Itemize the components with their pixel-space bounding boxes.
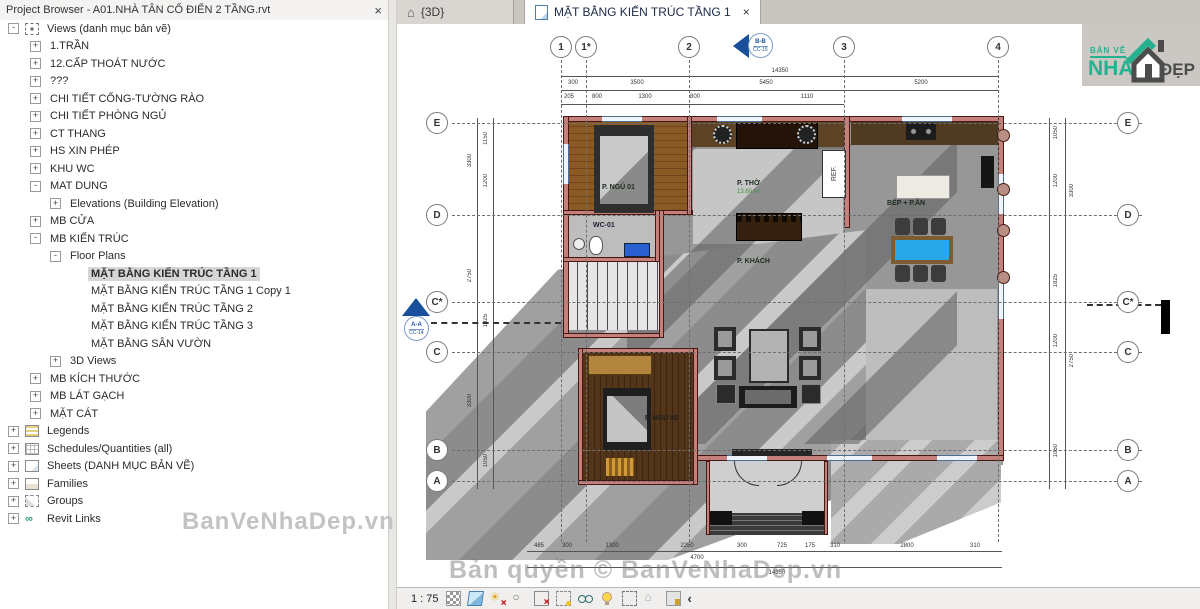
drawing-canvas[interactable]: BẢN VẼ NHÀ ĐẸP [397, 24, 1200, 587]
tree-item[interactable]: 1.TRẦN [0, 38, 388, 56]
house-logo-icon [1124, 32, 1172, 84]
expand-icon[interactable] [30, 373, 41, 384]
room-label-kitchen: BẾP + P.ĂN [887, 200, 925, 207]
expand-icon[interactable] [8, 478, 19, 489]
revit-links-icon: ∞ [25, 513, 39, 525]
grid-bubble-E-left: E [426, 112, 448, 134]
tree-item[interactable]: MẶT BẰNG KIẾN TRÚC TẦNG 3 [0, 318, 388, 336]
armchair-cushion [803, 331, 817, 347]
tree-item[interactable]: MẶT CÁT [0, 405, 388, 423]
dim-value: 5450 [759, 80, 772, 86]
expand-icon[interactable] [8, 513, 19, 524]
kitchen-island [896, 175, 950, 199]
bed-2-blanket [607, 396, 647, 442]
grid-bubble-B-right: B [1117, 439, 1139, 461]
window [937, 455, 977, 461]
tree-item[interactable]: MB KIẾN TRÚC [0, 230, 388, 248]
sheets-icon [25, 460, 39, 472]
wall [655, 210, 660, 262]
grid-bubble-B-left: B [426, 439, 448, 461]
armchair-cushion [718, 360, 732, 376]
dim-value: 1050 [483, 454, 489, 467]
dim-value: 800 [690, 94, 700, 100]
collapse-icon[interactable] [30, 233, 41, 244]
grid-bubble-1s: 1* [575, 36, 597, 58]
grid-line-D [452, 215, 1142, 216]
dim-value: 300 [737, 543, 747, 549]
legends-icon [25, 425, 39, 437]
show-crop-region-icon[interactable] [556, 591, 571, 606]
dim-value: 3300 [1069, 184, 1075, 197]
section-marker-aa: A-A CC-14 [404, 316, 429, 341]
staircase [568, 262, 660, 330]
grid-line-3 [844, 60, 845, 542]
side-table [801, 384, 821, 404]
armchair-cushion [718, 331, 732, 347]
schedules-icon [25, 443, 39, 455]
section-tail-mark [1161, 300, 1170, 334]
room-label-bedroom1: P. NGỦ 01 [602, 184, 635, 191]
room-label-bedroom2: P. NGỦ 02 [645, 415, 678, 422]
tree-item-views[interactable]: Views (danh mục bản vẽ) [0, 20, 388, 38]
dining-chair [931, 218, 946, 235]
dim-value: 205 [564, 94, 574, 100]
grid-bubble-C-left: C [426, 341, 448, 363]
crop-view-icon[interactable] [534, 591, 549, 606]
dim-value: 1825 [483, 314, 489, 327]
copyright-watermark: Bản quyền © BanVeNhaDep.vn [449, 556, 842, 585]
dining-chair [931, 265, 946, 282]
sink [573, 238, 585, 250]
visual-style-icon[interactable] [466, 591, 483, 606]
dim-value: 1200 [483, 174, 489, 187]
expand-icon[interactable] [30, 216, 41, 227]
tall-cabinet [981, 156, 994, 188]
dim-value: 725 [777, 543, 787, 549]
banvenhadep-logo: BẢN VẼ NHÀ ĐẸP [1082, 24, 1200, 86]
grid-bubble-D-left: D [426, 204, 448, 226]
tree-item[interactable]: MẶT BẰNG KIẾN TRÚC TẦNG 2 [0, 300, 388, 318]
collapse-icon[interactable] [8, 23, 19, 34]
room-label-altar: P. THỜ [737, 180, 760, 187]
dimension-line [477, 118, 478, 489]
wall [563, 333, 663, 338]
grid-bubble-A-left: A [426, 470, 448, 492]
dim-value: 2250 [680, 543, 693, 549]
window [717, 116, 762, 122]
dining-chair [913, 265, 928, 282]
project-browser-panel: Project Browser - A01.NHÀ TÂN CỔ ĐIỂN 2 … [0, 0, 389, 609]
groups-icon [25, 495, 39, 507]
dim-value: 14350 [772, 68, 789, 74]
tree-item[interactable]: KHU WC [0, 160, 388, 178]
bath-bench [624, 243, 650, 257]
collapse-icon[interactable] [30, 181, 41, 192]
tab-close-icon[interactable]: × [743, 5, 750, 19]
grid-line-2 [689, 60, 690, 542]
tree-item[interactable]: CHI TIẾT PHÒNG NGỦ [0, 108, 388, 126]
tree-item[interactable]: Elevations (Building Elevation) [0, 195, 388, 213]
section-line [431, 322, 561, 324]
dim-value: 1150 [483, 132, 489, 145]
wall [578, 348, 583, 485]
tree-item[interactable]: MAT DUNG [0, 178, 388, 196]
expand-icon[interactable] [30, 76, 41, 87]
dim-value: 310 [970, 543, 980, 549]
tab-floor-plan-active[interactable]: MẶT BẰNG KIẾN TRÚC TẦNG 1 × [524, 0, 761, 24]
expand-icon[interactable] [30, 41, 41, 52]
tab-label: {3D} [421, 5, 444, 19]
dim-value: 1825 [1053, 274, 1059, 287]
dim-value: 2750 [1069, 354, 1075, 367]
sun-path-icon[interactable] [490, 591, 505, 606]
expand-icon[interactable] [30, 58, 41, 69]
grid-bubble-1: 1 [550, 36, 572, 58]
expand-icon[interactable] [30, 391, 41, 402]
temporary-view-properties-icon[interactable] [622, 591, 637, 606]
refrigerator-label: REF. [831, 166, 838, 181]
side-table [716, 384, 736, 404]
wall [563, 257, 663, 262]
home-icon: ⌂ [407, 5, 415, 20]
expand-icon[interactable] [50, 198, 61, 209]
grid-line-1 [561, 60, 562, 542]
grid-bubble-3: 3 [833, 36, 855, 58]
section-arrow-icon [402, 298, 430, 316]
scale-control[interactable]: 1 : 75 [411, 593, 439, 605]
tab-label: MẶT BẰNG KIẾN TRÚC TẦNG 1 [554, 5, 731, 19]
dim-value: 2750 [467, 269, 473, 282]
tree-item[interactable]: CT THANG [0, 125, 388, 143]
toilet [589, 236, 603, 255]
tree-item[interactable]: MẶT BẰNG SÂN VƯỜN [0, 335, 388, 353]
refrigerator: REF. [822, 150, 846, 198]
armchair-cushion [803, 360, 817, 376]
room-label-living: P. KHÁCH [737, 258, 770, 265]
expand-icon[interactable] [30, 93, 41, 104]
expand-icon[interactable] [8, 496, 19, 507]
families-icon [25, 478, 39, 490]
dimension-line [1065, 118, 1066, 489]
drawing-pane: ⌂ {3D} MẶT BẰNG KIẾN TRÚC TẦNG 1 × BẢN V… [397, 0, 1200, 609]
dim-value: 3300 [467, 154, 473, 167]
dim-value: 310 [830, 543, 840, 549]
tree-item-legends[interactable]: Legends [0, 423, 388, 441]
grid-line-1s [586, 60, 587, 542]
watermark-text: BanVeNhaDep.vn [182, 508, 395, 536]
dimension-line [527, 551, 1002, 552]
grid-line-B [452, 450, 1142, 451]
dim-value: 485 [534, 543, 544, 549]
floor-plan-icon [535, 5, 548, 20]
sofa [749, 329, 789, 383]
porch-column [802, 511, 824, 525]
project-browser-title: Project Browser - A01.NHÀ TÂN CỔ ĐIỂN 2 … [6, 4, 270, 16]
dim-value: 1300 [638, 94, 651, 100]
grid-line-C [452, 352, 1142, 353]
grid-line-E [452, 123, 1142, 124]
analytical-model-icon[interactable] [644, 591, 659, 606]
shadows-icon[interactable] [512, 591, 527, 606]
dining-chair [913, 218, 928, 235]
dining-chair [895, 265, 910, 282]
grid-line-Cs [452, 302, 1142, 303]
window [563, 144, 569, 184]
views-icon [25, 23, 39, 35]
view-control-bar: 1 : 75 ‹ [397, 587, 1200, 609]
reveal-constraints-icon[interactable] [666, 591, 681, 606]
reveal-hidden-elements-icon[interactable] [600, 591, 615, 606]
grid-bubble-Cs-right: C* [1117, 291, 1139, 313]
dining-chair [895, 218, 910, 235]
dim-value: 1300 [605, 543, 618, 549]
tree-item[interactable]: MẶT BẰNG KIẾN TRÚC TẦNG 1 Copy 1 [0, 283, 388, 301]
grid-line-A [452, 481, 1142, 482]
window [827, 455, 872, 461]
wall [824, 461, 828, 535]
stool [713, 125, 732, 144]
coffee-table-top [745, 390, 791, 404]
expand-icon[interactable] [30, 128, 41, 139]
tree-item-sheets[interactable]: Sheets (DANH MỤC BẢN VẼ) [0, 458, 388, 476]
grid-bubble-E-right: E [1117, 112, 1139, 134]
detail-level-icon[interactable] [446, 591, 461, 606]
dimension-line [493, 118, 494, 489]
dimension-line [561, 104, 844, 105]
stove [906, 123, 936, 140]
tree-item-active-view[interactable]: MẶT BẰNG KIẾN TRÚC TẦNG 1 [0, 265, 388, 283]
collapse-icon[interactable] [50, 251, 61, 262]
expand-icon[interactable] [50, 356, 61, 367]
tree-item[interactable]: Floor Plans [0, 248, 388, 266]
grid-bubble-C-right: C [1117, 341, 1139, 363]
expand-icon[interactable] [30, 408, 41, 419]
room-area-altar: 13.60 m² [737, 189, 761, 195]
rug [606, 458, 634, 476]
dim-value: 5200 [914, 80, 927, 86]
tree-item[interactable]: 12.CẤP THOÁT NƯỚC [0, 55, 388, 73]
expand-icon[interactable] [8, 426, 19, 437]
dim-value: 1050 [1053, 444, 1059, 457]
room-label-wc: WC-01 [593, 222, 615, 229]
grid-line-4 [998, 60, 999, 542]
grid-bubble-A-right: A [1117, 470, 1139, 492]
browser-tree: Views (danh mục bản vẽ) 1.TRẦN 12.CẤP TH… [0, 20, 388, 528]
back-arrow-icon[interactable]: ‹ [688, 591, 692, 606]
stool [797, 125, 816, 144]
project-browser-header: Project Browser - A01.NHÀ TÂN CỔ ĐIỂN 2 … [0, 0, 388, 20]
temporary-hide-isolate-icon[interactable] [578, 591, 593, 606]
grid-bubble-2: 2 [678, 36, 700, 58]
tree-item-schedules[interactable]: Schedules/Quantities (all) [0, 440, 388, 458]
expand-icon[interactable] [8, 443, 19, 454]
tree-item[interactable]: CHI TIẾT CỔNG-TƯỜNG RÀO [0, 90, 388, 108]
dim-value: 300 [562, 543, 572, 549]
dim-value: 300 [568, 80, 578, 86]
view-tab-bar: ⌂ {3D} MẶT BẰNG KIẾN TRÚC TẦNG 1 × [397, 0, 1200, 24]
dim-value: 1050 [1053, 126, 1059, 139]
grid-bubble-D-right: D [1117, 204, 1139, 226]
dim-value: 800 [592, 94, 602, 100]
tree-item[interactable]: HS XIN PHÉP [0, 143, 388, 161]
dimension-line [1049, 118, 1050, 489]
expand-icon[interactable] [30, 111, 41, 122]
dimension-line [561, 76, 998, 77]
window [602, 116, 642, 122]
tree-item[interactable]: MB LÁT GẠCH [0, 388, 388, 406]
porch-column [710, 511, 732, 525]
dim-value: 2800 [900, 543, 913, 549]
altar-cabinet [736, 213, 802, 241]
tree-item-families[interactable]: Families [0, 475, 388, 493]
tree-item[interactable]: MB CỬA [0, 213, 388, 231]
section-marker-bb: B-B CC-15 [748, 33, 773, 58]
wardrobe [588, 355, 652, 375]
dim-value: 175 [805, 543, 815, 549]
expand-icon[interactable] [8, 461, 19, 472]
expand-icon[interactable] [30, 163, 41, 174]
dim-value: 3500 [630, 80, 643, 86]
expand-icon[interactable] [30, 146, 41, 157]
close-icon[interactable]: × [374, 3, 382, 18]
window [902, 116, 952, 122]
tab-3d-view[interactable]: ⌂ {3D} [397, 0, 514, 24]
tree-item[interactable]: 3D Views [0, 353, 388, 371]
tree-item[interactable]: ??? [0, 73, 388, 91]
dimension-line [561, 90, 998, 91]
wall [693, 348, 698, 485]
grid-bubble-4: 4 [987, 36, 1009, 58]
dim-value: 1200 [1053, 174, 1059, 187]
tree-item[interactable]: MB KÍCH THƯỚC [0, 370, 388, 388]
dim-value: 1110 [801, 94, 813, 100]
dim-value: 3300 [467, 394, 473, 407]
section-arrow-icon [733, 34, 749, 58]
dim-value: 1200 [1053, 334, 1059, 347]
bed-1-blanket [600, 136, 648, 204]
dining-table [891, 236, 953, 264]
